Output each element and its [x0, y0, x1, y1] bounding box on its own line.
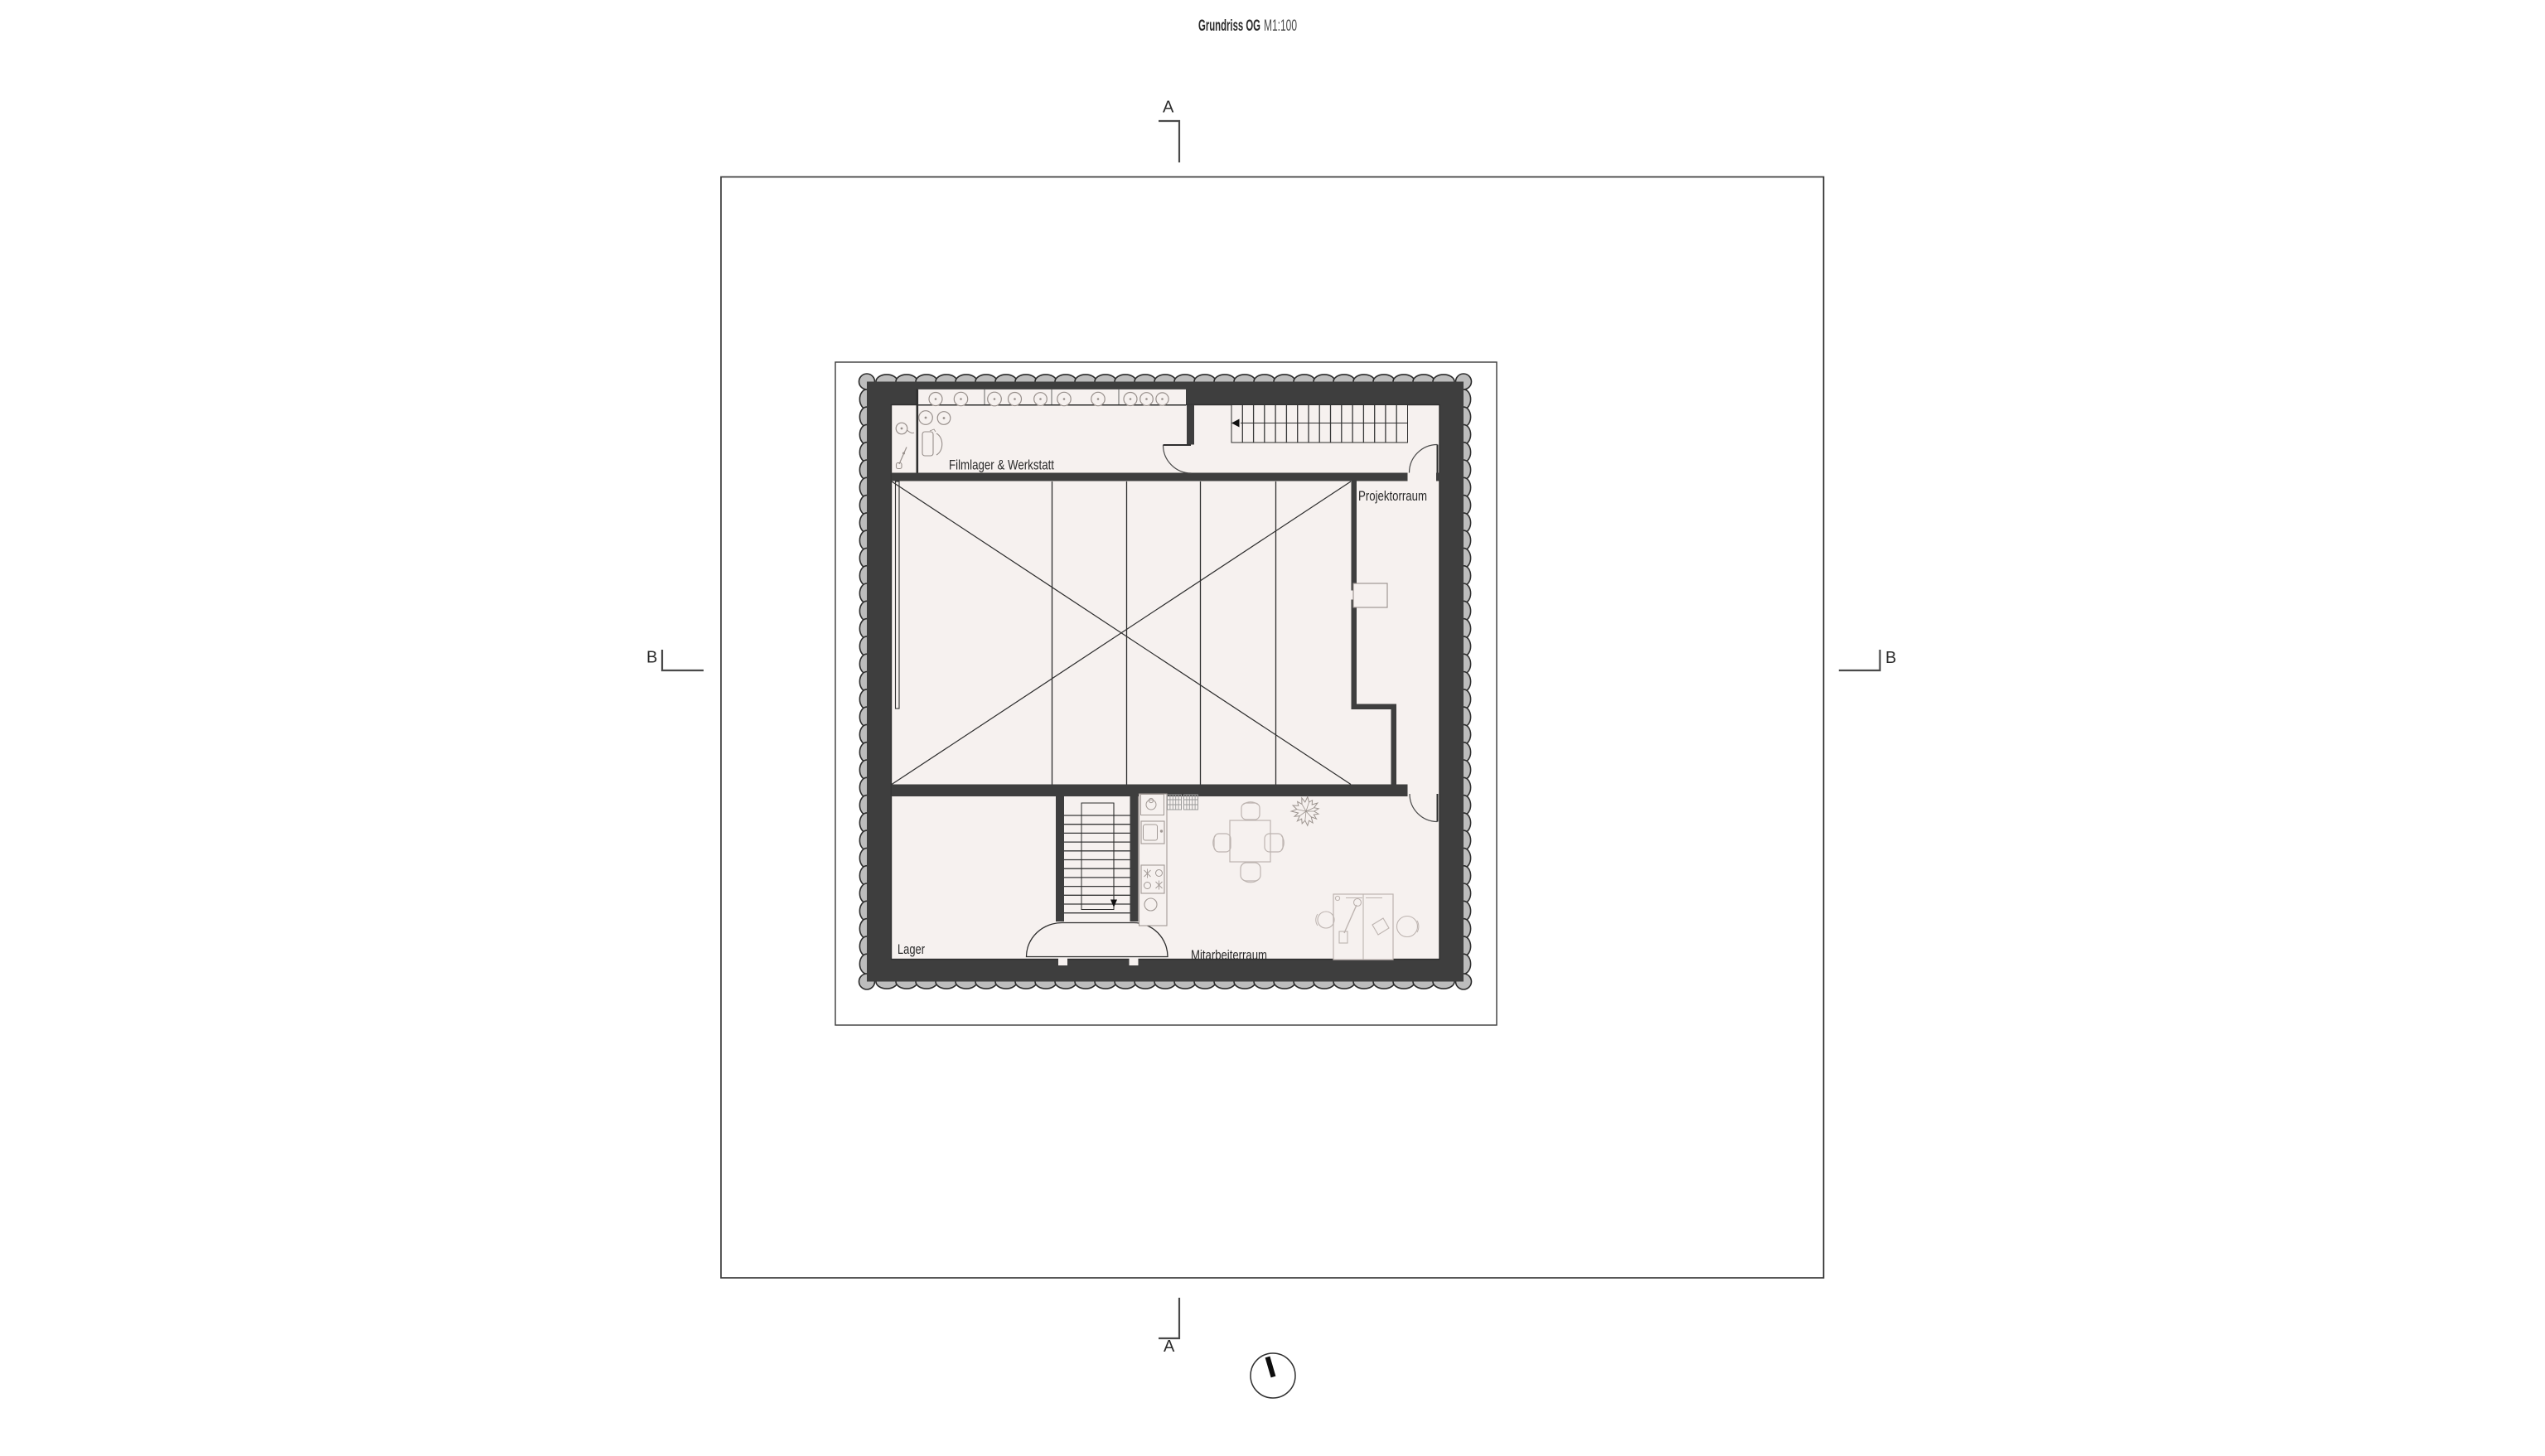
- svg-text:B: B: [1885, 649, 1896, 667]
- svg-text:A: A: [1163, 99, 1174, 117]
- svg-text:A: A: [1164, 1337, 1175, 1356]
- svg-text:Grundriss OGM1:100: Grundriss OGM1:100: [1198, 17, 1297, 35]
- svg-text:Projektorraum: Projektorraum: [1358, 489, 1427, 504]
- svg-text:Filmlager & Werkstatt: Filmlager & Werkstatt: [949, 458, 1054, 473]
- svg-text:Mitarbeiterraum: Mitarbeiterraum: [1191, 948, 1267, 963]
- svg-text:Lager: Lager: [898, 942, 925, 957]
- svg-text:B: B: [646, 649, 657, 667]
